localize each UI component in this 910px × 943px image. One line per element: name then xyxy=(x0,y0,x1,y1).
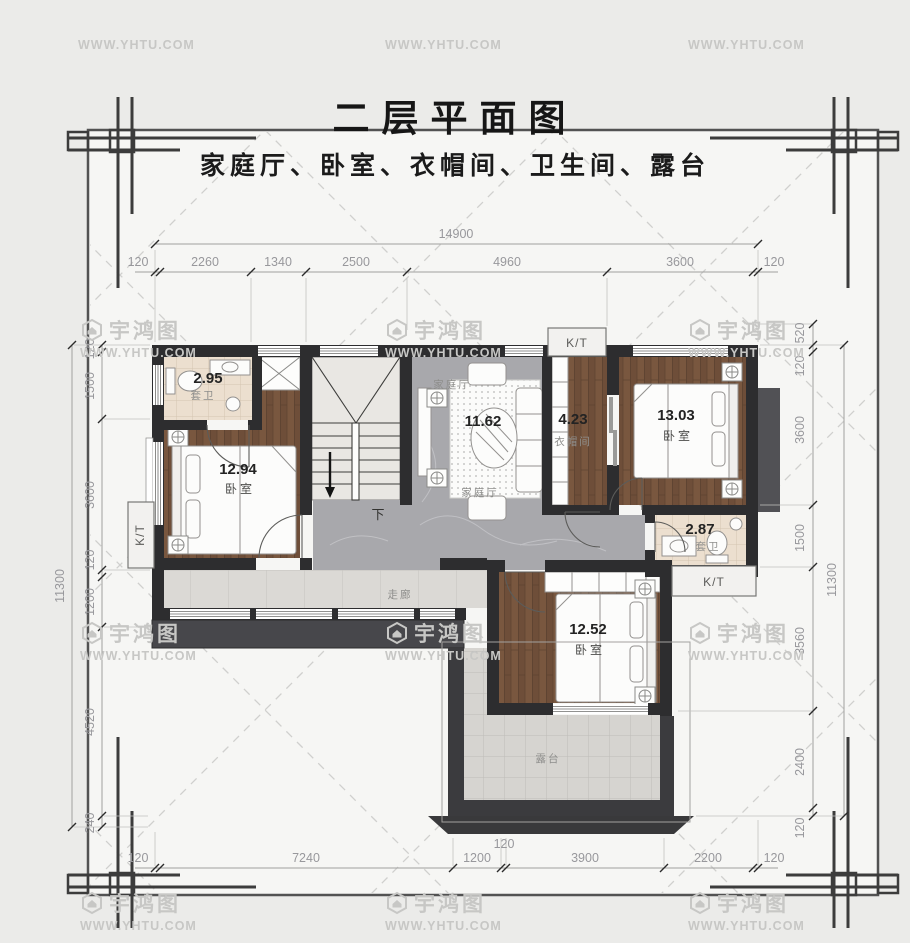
vent-icon xyxy=(427,469,447,487)
window xyxy=(258,346,300,356)
room-area: 11.62 xyxy=(465,413,502,430)
vent-icon xyxy=(168,536,188,554)
page-title: 二层平面图 xyxy=(0,88,910,142)
bed xyxy=(556,594,656,702)
dim-bottom: 120 xyxy=(128,851,149,865)
window xyxy=(320,346,378,356)
room-area: 2.95 xyxy=(193,370,222,387)
room-name: 卧室 xyxy=(663,428,693,443)
room-area: 12.94 xyxy=(219,461,257,478)
dim-bottom: 120 xyxy=(494,837,515,851)
room-name: 家庭厅 xyxy=(433,378,471,391)
room-area: 12.52 xyxy=(569,621,607,638)
kt-label: K/T xyxy=(703,575,725,589)
dim-top: 120 xyxy=(128,255,149,269)
vent-icon xyxy=(168,428,188,446)
page-subtitle: 家庭厅、卧室、衣帽间、卫生间、露台 xyxy=(0,146,910,182)
window xyxy=(170,609,455,619)
floor-bedroom-left-nook xyxy=(258,390,300,430)
toilet-tank-icon xyxy=(706,555,728,563)
window xyxy=(505,346,543,356)
vent-icon xyxy=(635,687,655,705)
shower-icon xyxy=(730,518,742,530)
cloakroom-shelves xyxy=(552,357,568,505)
dim-top-total: 14900 xyxy=(439,227,474,241)
room-name: 卧室 xyxy=(575,642,605,657)
dim-right: 120 xyxy=(793,818,807,839)
dim-left: 1500 xyxy=(83,372,97,400)
vent-icon xyxy=(635,580,655,598)
vent-icon xyxy=(722,363,742,381)
dim-left-total: 11300 xyxy=(53,569,67,603)
window xyxy=(553,704,648,714)
terrace-shadow xyxy=(428,816,694,834)
dim-bottom: 120 xyxy=(764,851,785,865)
armchair xyxy=(468,496,506,520)
room-area: 13.03 xyxy=(657,407,695,424)
window xyxy=(153,365,163,405)
room-name: 衣帽间 xyxy=(554,435,592,448)
dim-left: 4520 xyxy=(83,708,97,736)
dim-right: 520 xyxy=(793,323,807,344)
room-label-terrace: 露台 xyxy=(536,752,561,765)
armchair xyxy=(468,363,506,385)
kt-label: K/T xyxy=(566,336,588,350)
room-area: 4.23 xyxy=(558,411,587,428)
floor-plan-page: 二层平面图 家庭厅、卧室、衣帽间、卫生间、露台 WWW.YHTU.COM WWW… xyxy=(0,0,910,943)
dim-left: 120 xyxy=(83,550,97,571)
dim-left: 3600 xyxy=(83,481,97,509)
sofa xyxy=(516,388,542,492)
kt-label: K/T xyxy=(133,524,147,546)
dim-top: 2500 xyxy=(342,255,370,269)
room-label-corridor: 走廊 xyxy=(388,588,413,601)
wardrobe-closet xyxy=(258,357,300,390)
dim-bottom: 3900 xyxy=(571,851,599,865)
room-area: 2.87 xyxy=(685,521,714,538)
dim-top: 120 xyxy=(764,255,785,269)
dim-top: 2260 xyxy=(191,255,219,269)
dim-bottom: 2200 xyxy=(694,851,722,865)
sink-icon xyxy=(222,362,238,372)
room-name: 家庭厅 xyxy=(461,486,499,499)
bay-window xyxy=(758,388,780,512)
dim-bottom: 1200 xyxy=(463,851,491,865)
awning-roof xyxy=(152,620,464,648)
stairs-down-label: 下 xyxy=(371,507,384,522)
dim-top: 1340 xyxy=(264,255,292,269)
dim-right: 1500 xyxy=(793,524,807,552)
dim-right: 3560 xyxy=(793,627,807,655)
dim-left: 1200 xyxy=(83,588,97,616)
dim-bottom: 7240 xyxy=(292,851,320,865)
floor-corridor xyxy=(164,570,487,608)
dim-left: 240 xyxy=(83,813,97,834)
vent-icon xyxy=(722,480,742,498)
dim-right: 120 xyxy=(793,356,807,377)
dim-left: 120 xyxy=(83,339,97,360)
floor-drain-icon xyxy=(226,397,240,411)
room-name: 卧室 xyxy=(225,481,255,496)
dim-right: 2400 xyxy=(793,748,807,776)
room-name: 套卫 xyxy=(191,389,216,402)
vent-icon xyxy=(427,389,447,407)
dim-right-total: 11300 xyxy=(825,563,839,597)
toilet-tank-icon xyxy=(166,368,175,394)
dim-right: 3600 xyxy=(793,416,807,444)
dim-top: 4960 xyxy=(493,255,521,269)
room-name: 套卫 xyxy=(696,540,721,553)
dim-top: 3600 xyxy=(666,255,694,269)
window xyxy=(633,346,728,356)
